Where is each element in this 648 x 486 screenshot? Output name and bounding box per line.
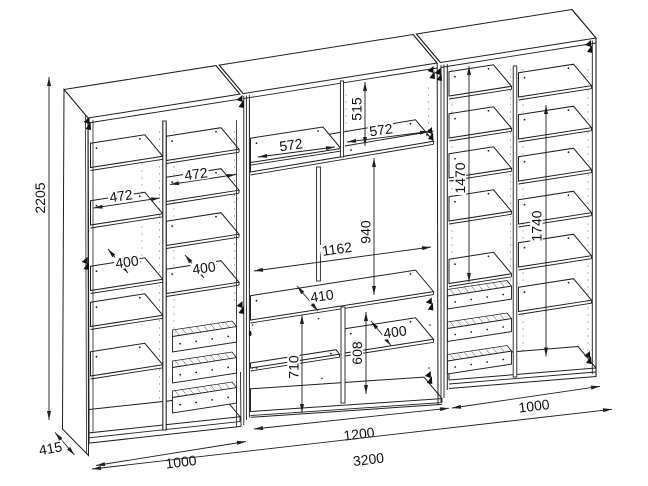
svg-text:572: 572 (278, 135, 304, 154)
svg-text:400: 400 (114, 252, 140, 271)
svg-text:1000: 1000 (518, 396, 551, 416)
svg-text:1162: 1162 (321, 239, 353, 259)
svg-text:1200: 1200 (343, 424, 376, 444)
svg-text:515: 515 (348, 97, 364, 121)
svg-text:400: 400 (191, 258, 217, 277)
svg-text:572: 572 (368, 120, 394, 139)
svg-text:3200: 3200 (352, 449, 385, 469)
svg-text:472: 472 (183, 164, 209, 183)
svg-text:1740: 1740 (528, 210, 544, 241)
svg-text:608: 608 (349, 341, 365, 365)
svg-text:415: 415 (38, 438, 64, 458)
svg-text:1470: 1470 (452, 162, 468, 193)
svg-text:2205: 2205 (32, 182, 48, 213)
svg-text:940: 940 (357, 220, 373, 244)
svg-text:410: 410 (309, 286, 335, 305)
svg-text:710: 710 (285, 355, 301, 379)
svg-text:1000: 1000 (165, 452, 198, 472)
svg-text:400: 400 (382, 322, 408, 341)
svg-text:472: 472 (108, 186, 134, 205)
